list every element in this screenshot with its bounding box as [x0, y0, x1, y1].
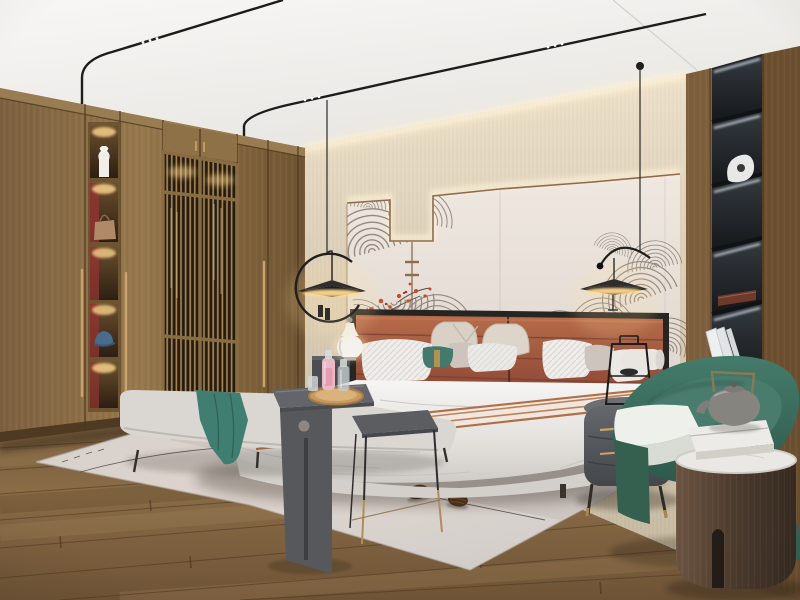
vignette-overlay — [0, 0, 800, 600]
bedroom-scene — [0, 0, 800, 600]
scene-canvas — [0, 0, 800, 600]
